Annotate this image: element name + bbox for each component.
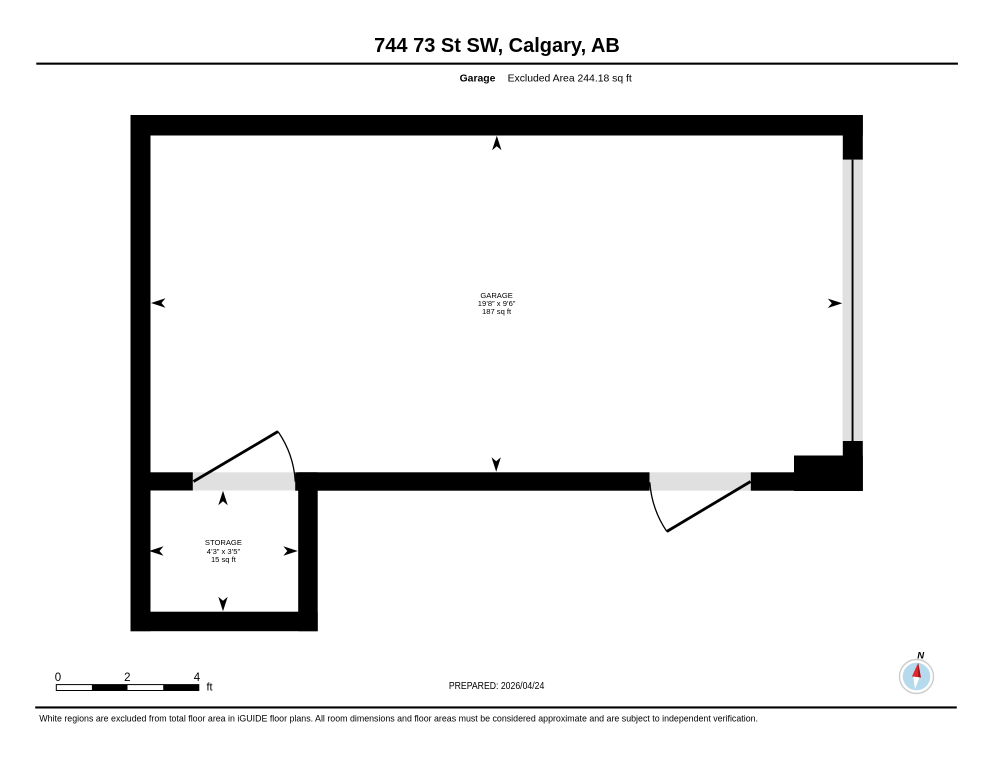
svg-text:15 sq ft: 15 sq ft — [211, 555, 237, 564]
svg-text:187 sq ft: 187 sq ft — [482, 307, 512, 316]
svg-text:PREPARED: 2026/04/24: PREPARED: 2026/04/24 — [449, 680, 544, 691]
svg-text:744 73 St SW, Calgary, AB: 744 73 St SW, Calgary, AB — [374, 35, 620, 57]
svg-text:2: 2 — [124, 672, 130, 684]
svg-text:White regions are excluded fro: White regions are excluded from total fl… — [39, 714, 758, 724]
svg-text:ft: ft — [207, 681, 213, 693]
svg-text:4: 4 — [194, 672, 201, 684]
svg-text:Garage: Garage — [460, 74, 496, 85]
svg-text:0: 0 — [55, 672, 61, 684]
svg-text:Excluded Area 244.18 sq ft: Excluded Area 244.18 sq ft — [508, 74, 632, 85]
svg-text:STORAGE: STORAGE — [205, 538, 242, 547]
